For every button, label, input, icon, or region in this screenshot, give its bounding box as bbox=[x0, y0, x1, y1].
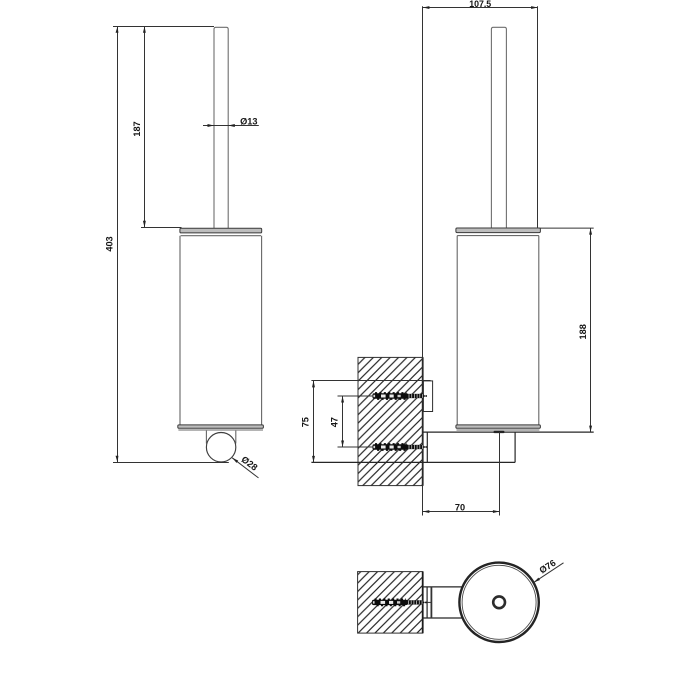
svg-text:Ø28: Ø28 bbox=[239, 454, 259, 472]
svg-text:188: 188 bbox=[578, 324, 588, 339]
svg-text:107.5: 107.5 bbox=[469, 0, 491, 9]
svg-text:Ø13: Ø13 bbox=[240, 116, 257, 126]
svg-text:70: 70 bbox=[455, 502, 465, 512]
svg-text:187: 187 bbox=[132, 121, 142, 136]
svg-text:47: 47 bbox=[330, 417, 340, 427]
svg-text:403: 403 bbox=[105, 236, 115, 251]
svg-text:75: 75 bbox=[301, 417, 311, 427]
